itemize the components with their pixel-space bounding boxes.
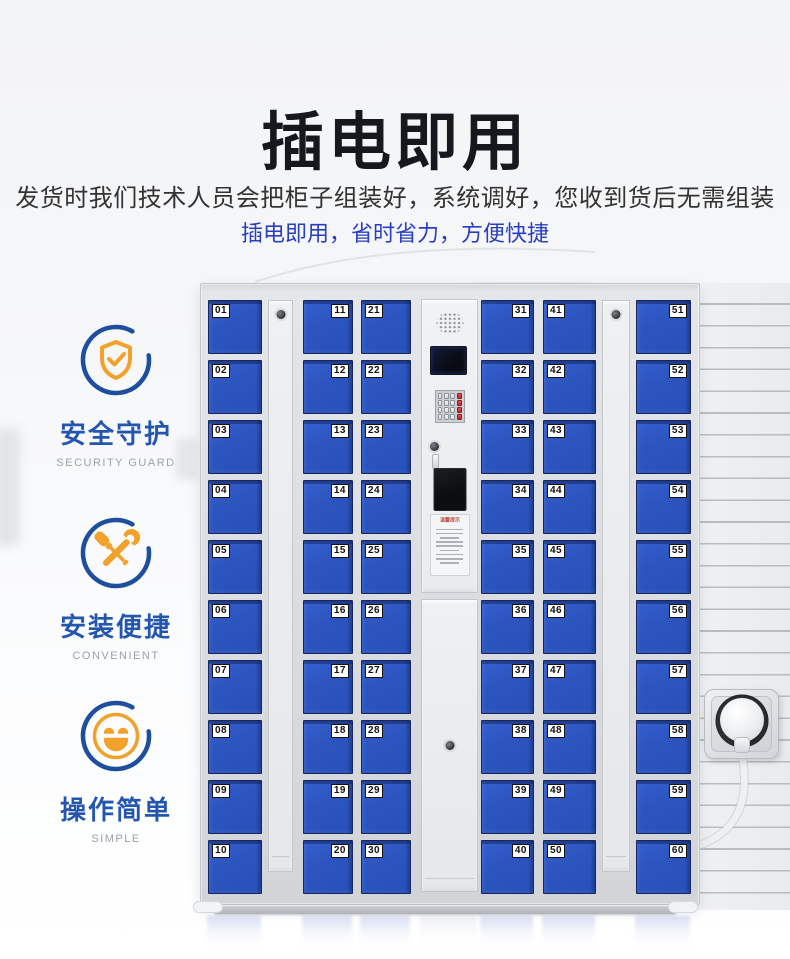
- locker-door-29: 29: [361, 780, 411, 834]
- keypad-key: [450, 407, 455, 413]
- feature-label-zh: 安装便捷: [38, 607, 194, 644]
- door-number-plate: 18: [331, 724, 349, 738]
- door-number-plate: 48: [547, 724, 565, 738]
- page-title: 插电即用: [0, 92, 790, 183]
- wrench-screwdriver-icon: [76, 513, 156, 593]
- keypad-key: [450, 414, 455, 420]
- door-number-plate: 24: [365, 484, 383, 498]
- door-number-plate: 46: [547, 604, 565, 618]
- keypad-key: [444, 393, 449, 399]
- locker-door-60: 60: [636, 840, 691, 894]
- door-number-plate: 08: [212, 724, 230, 738]
- lower-panel-door: [421, 599, 478, 892]
- door-number-plate: 26: [365, 604, 383, 618]
- locker-door-09: 09: [208, 780, 262, 834]
- keypad-key-red: [457, 407, 462, 413]
- locker-door-44: 44: [543, 480, 596, 534]
- feature-convenient: 安装便捷 CONVENIENT: [38, 513, 194, 662]
- keypad-key: [438, 407, 443, 413]
- display-screen: [430, 346, 467, 375]
- feature-label-en: CONVENIENT: [38, 650, 194, 662]
- locker-column-8: [601, 284, 631, 906]
- side-panel-door: [602, 300, 630, 872]
- feature-simple: 操作简单 SIMPLE: [38, 696, 194, 845]
- locker-column-9: 51525354555657585960: [636, 284, 691, 906]
- door-number-plate: 04: [212, 484, 230, 498]
- side-panel-door: [268, 300, 293, 872]
- locker-door-54: 54: [636, 480, 691, 534]
- locker-door-59: 59: [636, 780, 691, 834]
- locker-door-01: 01: [208, 300, 262, 354]
- door-number-plate: 05: [212, 544, 230, 558]
- keypad-key: [450, 400, 455, 406]
- locker-door-33: 33: [481, 420, 534, 474]
- door-number-plate: 49: [547, 784, 565, 798]
- door-number-plate: 57: [669, 664, 687, 678]
- feature-label-zh: 操作简单: [38, 790, 194, 827]
- scanner-window: [433, 468, 466, 511]
- locker-door-50: 50: [543, 840, 596, 894]
- reflection-column: [635, 916, 690, 959]
- smiley-face-icon: [76, 696, 156, 776]
- door-number-plate: 11: [331, 304, 349, 318]
- control-panel: 温馨提示: [421, 299, 478, 593]
- door-number-plate: 10: [212, 844, 230, 858]
- locker-door-38: 38: [481, 720, 534, 774]
- door-number-plate: 30: [365, 844, 383, 858]
- door-number-plate: 41: [547, 304, 565, 318]
- keypad-key-red: [457, 414, 462, 420]
- door-number-plate: 15: [331, 544, 349, 558]
- feature-label-en: SECURITY GUARD: [38, 457, 194, 469]
- reflection-fade: [170, 908, 730, 959]
- keypad-key: [444, 407, 449, 413]
- locker-door-34: 34: [481, 480, 534, 534]
- locker-column-4: 21222324252627282930: [361, 284, 411, 906]
- door-number-plate: 56: [669, 604, 687, 618]
- keypad-key: [444, 414, 449, 420]
- door-number-plate: 09: [212, 784, 230, 798]
- notice-title: 温馨提示: [440, 518, 460, 523]
- door-number-plate: 43: [547, 424, 565, 438]
- door-number-plate: 27: [365, 664, 383, 678]
- locker-door-56: 56: [636, 600, 691, 654]
- locker-door-11: 11: [303, 300, 353, 354]
- locker-door-10: 10: [208, 840, 262, 894]
- locker-door-53: 53: [636, 420, 691, 474]
- key-icon: [432, 454, 439, 469]
- locker-door-18: 18: [303, 720, 353, 774]
- locker-column-1: 01020304050607080910: [208, 284, 262, 906]
- door-number-plate: 17: [331, 664, 349, 678]
- reflection-column: [420, 916, 477, 959]
- door-number-plate: 13: [331, 424, 349, 438]
- reflection-column: [302, 916, 352, 959]
- locker-door-27: 27: [361, 660, 411, 714]
- door-number-plate: 45: [547, 544, 565, 558]
- reflection-column: [360, 916, 410, 959]
- keypad-key: [438, 414, 443, 420]
- notice-label: 温馨提示: [430, 514, 470, 576]
- promo-page: 插电即用 发货时我们技术人员会把柜子组装好，系统调好，您收到货后无需组装 插电即…: [0, 0, 790, 959]
- door-number-plate: 55: [669, 544, 687, 558]
- door-number-plate: 59: [669, 784, 687, 798]
- locker-door-22: 22: [361, 360, 411, 414]
- keypad-key-red: [457, 393, 462, 399]
- locker-door-19: 19: [303, 780, 353, 834]
- door-number-plate: 21: [365, 304, 383, 318]
- locker-door-05: 05: [208, 540, 262, 594]
- keypad-key: [438, 400, 443, 406]
- locker-column-2: [267, 284, 294, 906]
- reflection-column: [480, 916, 533, 959]
- keyhole-lock-icon: [276, 310, 285, 319]
- locker-door-26: 26: [361, 600, 411, 654]
- locker-door-12: 12: [303, 360, 353, 414]
- door-number-plate: 36: [512, 604, 530, 618]
- door-number-plate: 42: [547, 364, 565, 378]
- background-blur-shape: [0, 428, 20, 546]
- door-number-plate: 33: [512, 424, 530, 438]
- locker-door-43: 43: [543, 420, 596, 474]
- door-number-plate: 22: [365, 364, 383, 378]
- door-number-plate: 44: [547, 484, 565, 498]
- locker-door-51: 51: [636, 300, 691, 354]
- background-blur-shape: [176, 438, 198, 480]
- reflection-column: [207, 916, 261, 959]
- cabinet-foot: [193, 901, 223, 913]
- locker-door-07: 07: [208, 660, 262, 714]
- locker-door-16: 16: [303, 600, 353, 654]
- locker-door-48: 48: [543, 720, 596, 774]
- keyhole-lock-icon: [445, 741, 454, 750]
- feature-label-zh: 安全守护: [38, 414, 194, 451]
- door-number-plate: 14: [331, 484, 349, 498]
- door-number-plate: 53: [669, 424, 687, 438]
- locker-door-30: 30: [361, 840, 411, 894]
- locker-door-47: 47: [543, 660, 596, 714]
- door-number-plate: 29: [365, 784, 383, 798]
- locker-door-58: 58: [636, 720, 691, 774]
- locker-door-41: 41: [543, 300, 596, 354]
- locker-door-55: 55: [636, 540, 691, 594]
- keypad-key-red: [457, 400, 462, 406]
- locker-column-7: 41424344454647484950: [543, 284, 596, 906]
- locker-door-35: 35: [481, 540, 534, 594]
- locker-cabinet: 0102030405060708091011121314151617181920…: [200, 283, 700, 905]
- locker-door-40: 40: [481, 840, 534, 894]
- door-number-plate: 31: [512, 304, 530, 318]
- keypad-key: [444, 400, 449, 406]
- door-number-plate: 03: [212, 424, 230, 438]
- door-number-plate: 06: [212, 604, 230, 618]
- door-number-plate: 19: [331, 784, 349, 798]
- locker-door-20: 20: [303, 840, 353, 894]
- locker-door-06: 06: [208, 600, 262, 654]
- locker-column-6: 31323334353637383940: [481, 284, 534, 906]
- locker-column-5: 温馨提示: [421, 284, 478, 906]
- feature-label-en: SIMPLE: [38, 833, 194, 845]
- locker-door-21: 21: [361, 300, 411, 354]
- shield-check-icon: [76, 320, 156, 400]
- wall-siding: [692, 283, 790, 910]
- door-number-plate: 02: [212, 364, 230, 378]
- door-number-plate: 37: [512, 664, 530, 678]
- speaker-grille-icon: [436, 312, 463, 334]
- keypad-key: [450, 393, 455, 399]
- locker-door-49: 49: [543, 780, 596, 834]
- locker-door-13: 13: [303, 420, 353, 474]
- door-number-plate: 25: [365, 544, 383, 558]
- keyhole-lock-icon: [430, 442, 439, 451]
- keypad: [435, 390, 465, 423]
- door-number-plate: 16: [331, 604, 349, 618]
- locker-door-02: 02: [208, 360, 262, 414]
- locker-door-04: 04: [208, 480, 262, 534]
- locker-door-24: 24: [361, 480, 411, 534]
- locker-column-3: 11121314151617181920: [303, 284, 353, 906]
- locker-door-15: 15: [303, 540, 353, 594]
- door-number-plate: 28: [365, 724, 383, 738]
- locker-door-36: 36: [481, 600, 534, 654]
- locker-door-31: 31: [481, 300, 534, 354]
- locker-door-28: 28: [361, 720, 411, 774]
- power-plug-icon: [720, 698, 764, 742]
- tagline-text: 插电即用，省时省力，方便快捷: [0, 216, 790, 248]
- door-number-plate: 01: [212, 304, 230, 318]
- door-number-plate: 35: [512, 544, 530, 558]
- locker-door-39: 39: [481, 780, 534, 834]
- door-number-plate: 20: [331, 844, 349, 858]
- door-number-plate: 52: [669, 364, 687, 378]
- door-number-plate: 07: [212, 664, 230, 678]
- plug-stem: [734, 737, 750, 753]
- door-number-plate: 12: [331, 364, 349, 378]
- locker-door-42: 42: [543, 360, 596, 414]
- door-number-plate: 50: [547, 844, 565, 858]
- locker-door-03: 03: [208, 420, 262, 474]
- door-number-plate: 38: [512, 724, 530, 738]
- locker-door-32: 32: [481, 360, 534, 414]
- door-number-plate: 47: [547, 664, 565, 678]
- door-number-plate: 34: [512, 484, 530, 498]
- reflection-column: [542, 916, 595, 959]
- locker-door-52: 52: [636, 360, 691, 414]
- door-number-plate: 40: [512, 844, 530, 858]
- locker-door-08: 08: [208, 720, 262, 774]
- locker-door-37: 37: [481, 660, 534, 714]
- door-number-plate: 58: [669, 724, 687, 738]
- door-number-plate: 60: [669, 844, 687, 858]
- locker-door-57: 57: [636, 660, 691, 714]
- door-number-plate: 39: [512, 784, 530, 798]
- locker-door-14: 14: [303, 480, 353, 534]
- keypad-key: [438, 393, 443, 399]
- locker-door-25: 25: [361, 540, 411, 594]
- locker-door-23: 23: [361, 420, 411, 474]
- cabinet-foot: [668, 901, 698, 913]
- cabinet-base-bar: [213, 905, 677, 914]
- door-number-plate: 51: [669, 304, 687, 318]
- wall-socket: [704, 689, 779, 759]
- locker-door-17: 17: [303, 660, 353, 714]
- keyhole-lock-icon: [612, 310, 621, 319]
- door-number-plate: 23: [365, 424, 383, 438]
- locker-door-45: 45: [543, 540, 596, 594]
- locker-door-46: 46: [543, 600, 596, 654]
- feature-security: 安全守护 SECURITY GUARD: [38, 320, 194, 469]
- door-number-plate: 54: [669, 484, 687, 498]
- door-number-plate: 32: [512, 364, 530, 378]
- subtitle-text: 发货时我们技术人员会把柜子组装好，系统调好，您收到货后无需组装: [0, 178, 790, 213]
